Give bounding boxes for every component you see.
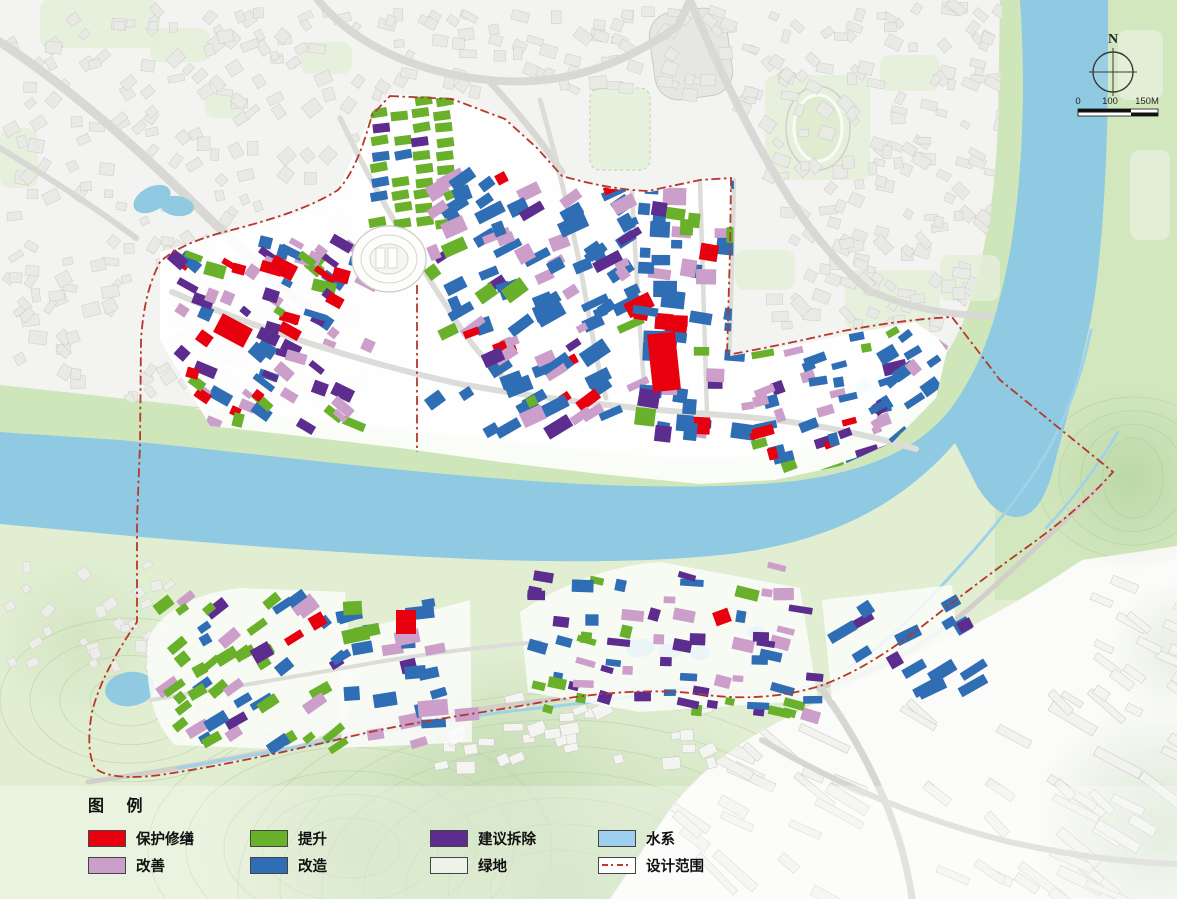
map-stage: N 0 100 150M 图 例 保护修缮改善提升改造建议拆除绿地水系设计范围	[0, 0, 1177, 899]
scale-tick-0: 0	[1075, 96, 1080, 107]
map-canvas: N 0 100 150M	[0, 0, 1177, 899]
scale-seg-4	[1131, 113, 1158, 117]
scale-seg-3	[1078, 113, 1131, 117]
scale-tick-150m: 150M	[1135, 96, 1159, 107]
compass-n-label: N	[1108, 32, 1118, 47]
scale-seg-1	[1078, 109, 1131, 113]
scale-seg-2	[1131, 109, 1158, 113]
stadium-oval	[352, 226, 426, 292]
scale-tick-100: 100	[1102, 96, 1118, 107]
